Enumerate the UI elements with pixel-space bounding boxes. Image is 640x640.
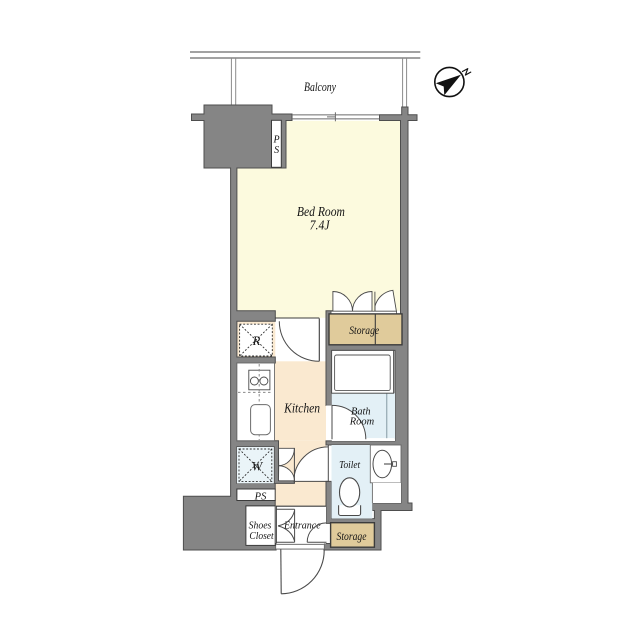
svg-text:7.4J: 7.4J [310, 218, 331, 233]
svg-text:Storage: Storage [337, 529, 368, 543]
svg-text:P: P [273, 135, 280, 146]
svg-text:Room: Room [349, 416, 374, 428]
svg-text:PS: PS [254, 491, 267, 502]
svg-text:R: R [252, 334, 261, 348]
svg-text:Balcony: Balcony [304, 80, 336, 94]
svg-text:W: W [252, 460, 264, 474]
svg-text:Storage: Storage [349, 323, 379, 337]
svg-text:S: S [274, 145, 279, 156]
svg-text:Kitchen: Kitchen [283, 400, 320, 415]
svg-text:Closet: Closet [249, 530, 274, 542]
svg-text:Toilet: Toilet [339, 460, 361, 471]
